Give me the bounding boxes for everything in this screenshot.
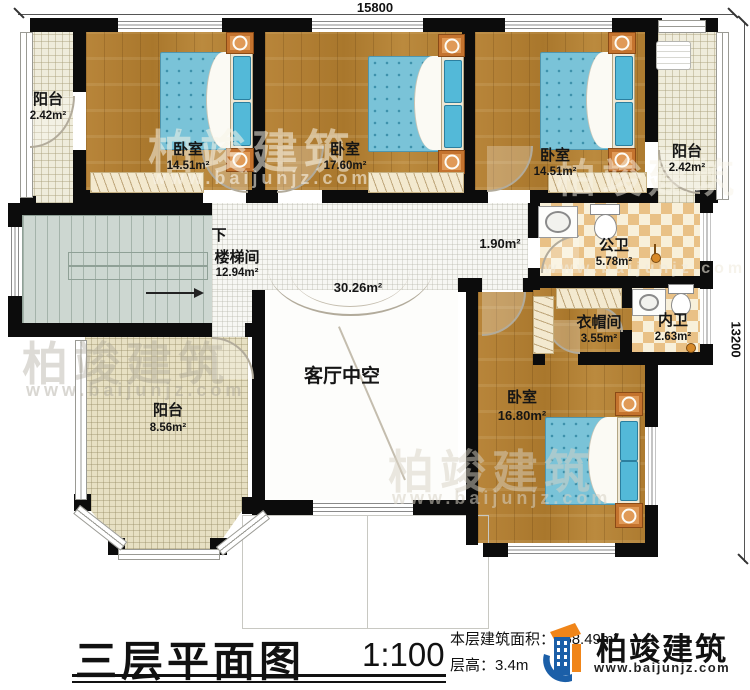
wall xyxy=(483,543,508,557)
floor-height-value: 3.4m xyxy=(495,657,528,674)
bed-pillow xyxy=(615,102,633,146)
nightstand xyxy=(438,34,465,57)
wall xyxy=(615,543,658,557)
room-label-void: 客厅中空 xyxy=(262,367,422,388)
room-label-public-bath: 公卫 xyxy=(586,238,642,255)
room-label-cloakroom: 衣帽间 xyxy=(566,315,632,332)
plan-scale: 1:100 xyxy=(362,636,445,674)
dimension-right: 13200 xyxy=(729,312,744,368)
room-area-bedroom3: 14.51m² xyxy=(505,166,605,179)
room-label-balcony-tl: 阳台 xyxy=(22,92,74,109)
dimension-tick xyxy=(13,7,24,18)
void-area: 30.26m² xyxy=(326,281,390,295)
watermark-url: www.baijunjz.com xyxy=(392,488,611,509)
sink-counter xyxy=(538,206,578,238)
room-area-cloakroom: 3.55m² xyxy=(568,333,630,346)
window xyxy=(646,427,658,505)
wall xyxy=(246,190,278,203)
dimension-line-right xyxy=(744,22,745,562)
window xyxy=(8,227,22,296)
stair-railing xyxy=(68,252,208,280)
window xyxy=(505,18,612,32)
wardrobe xyxy=(533,296,554,354)
wall xyxy=(8,203,212,215)
plan-title: 三层平面图 xyxy=(75,628,305,689)
lower-floor-divider xyxy=(367,516,368,628)
nightstand xyxy=(438,150,465,174)
window xyxy=(508,543,615,557)
wall xyxy=(78,18,118,32)
lower-floor-outline xyxy=(242,515,489,629)
door-knob xyxy=(686,343,696,353)
room-area-bedroom1: 14.51m² xyxy=(138,160,238,173)
wall xyxy=(423,18,505,32)
wall xyxy=(222,18,312,32)
nightstand xyxy=(615,392,643,416)
wall xyxy=(73,32,86,92)
room-label-balcony-tr: 阳台 xyxy=(654,144,720,161)
room-area-stairwell: 12.94m² xyxy=(204,267,270,280)
dimension-line-top xyxy=(18,14,734,15)
balcony-railing xyxy=(118,549,220,560)
bed-pillow xyxy=(615,56,633,100)
wall xyxy=(700,203,713,213)
room-area-bedroom2: 17.60m² xyxy=(295,160,395,173)
window xyxy=(701,213,713,261)
hallway-area: 1.90m² xyxy=(468,237,532,251)
floor-area-info: 本层建筑面积：158.49m² xyxy=(450,628,618,649)
room-label-bedroom1: 卧室 xyxy=(138,142,238,159)
wardrobe xyxy=(368,172,464,193)
balcony-post xyxy=(242,497,259,514)
brand-url: www.baijunjz.com xyxy=(594,660,730,675)
room-label-private-bath: 内卫 xyxy=(648,313,698,330)
dimension-tick xyxy=(737,15,748,26)
window xyxy=(701,289,713,344)
wall xyxy=(30,18,78,32)
bed-pillow xyxy=(444,105,462,148)
sink-basin xyxy=(545,211,571,233)
room-label-balcony-bl: 阳台 xyxy=(140,403,196,420)
dimension-top: 15800 xyxy=(330,0,420,15)
ac-unit xyxy=(656,41,691,70)
room-area-balcony-bl: 8.56m² xyxy=(138,422,198,435)
stair-direction-arrow xyxy=(146,292,196,294)
room-area-balcony-tr: 2.42m² xyxy=(654,162,720,175)
dimension-tick xyxy=(737,553,748,564)
wall xyxy=(645,352,658,427)
floor-height-info: 层高：3.4m xyxy=(450,654,528,675)
room-area-public-bath: 5.78m² xyxy=(582,256,646,269)
title-underline xyxy=(72,681,446,683)
watermark-url: www.baijunjz.com xyxy=(26,380,245,401)
room-label-stairwell: 楼梯间 xyxy=(204,250,270,267)
room-label-bedroom4: 卧室 xyxy=(462,390,582,407)
room-label-bedroom3: 卧室 xyxy=(505,148,605,165)
wardrobe xyxy=(556,288,622,309)
floor-height-label: 层高： xyxy=(450,657,495,674)
nightstand xyxy=(608,32,636,54)
wall xyxy=(612,18,662,32)
title-underline xyxy=(72,674,446,677)
nightstand xyxy=(615,503,643,528)
room-area-balcony-tl: 2.42m² xyxy=(22,110,74,123)
room-area-private-bath: 2.63m² xyxy=(646,331,700,344)
stair-arrow-head xyxy=(194,288,204,298)
bed-pillow xyxy=(620,461,638,501)
window xyxy=(312,18,423,32)
stair-direction-label: 下 xyxy=(206,228,232,245)
floor-plan-sheet: 柏竣建筑 www.baijunjz.com 柏竣建筑 www.baijunjz.… xyxy=(0,0,750,690)
balcony-railing xyxy=(658,20,706,33)
door-knob-stem xyxy=(654,244,656,254)
bed-blanket xyxy=(586,52,615,148)
window xyxy=(118,18,222,32)
room-area-bedroom4: 16.80m² xyxy=(462,409,582,423)
bed-pillow xyxy=(620,421,638,461)
wall xyxy=(700,344,713,365)
nightstand xyxy=(226,32,254,54)
wall xyxy=(252,290,265,503)
wall xyxy=(458,278,482,292)
wall xyxy=(245,323,265,337)
brand-logo-icon xyxy=(538,620,590,684)
sink-basin xyxy=(639,294,659,311)
room-label-bedroom2: 卧室 xyxy=(295,142,395,159)
bed-pillow xyxy=(233,56,251,100)
wall xyxy=(523,278,533,292)
bed-pillow xyxy=(444,60,462,103)
